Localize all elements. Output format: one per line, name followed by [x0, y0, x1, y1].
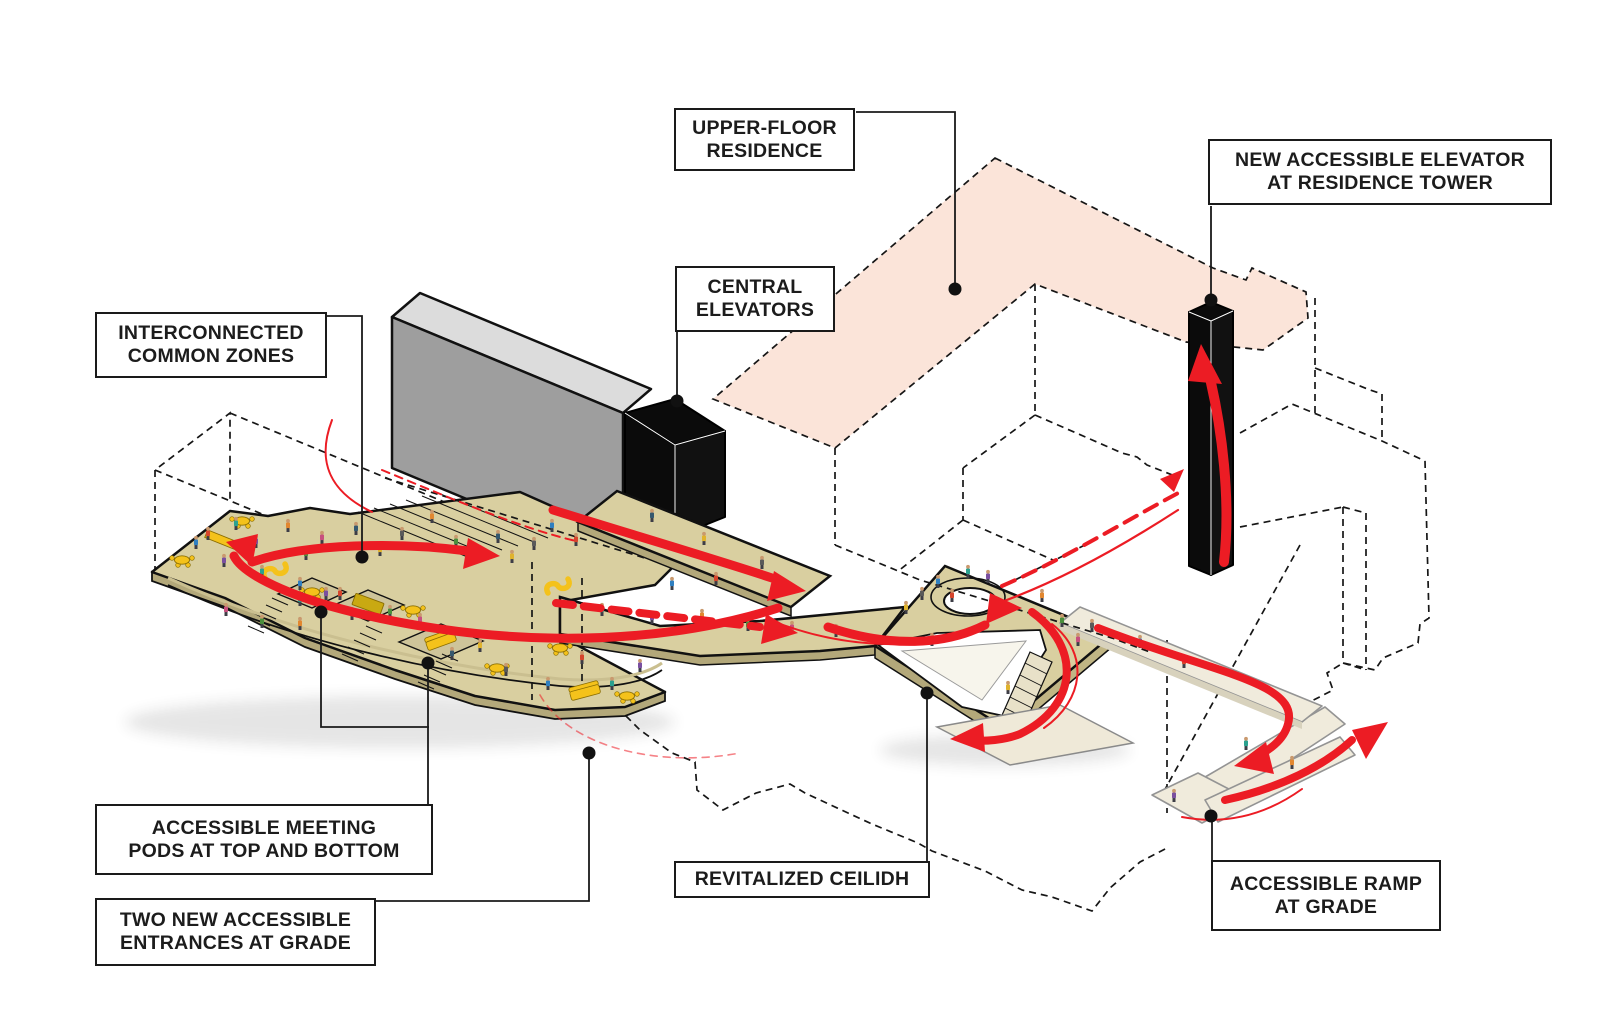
- label-line: RESIDENCE: [706, 140, 822, 163]
- person-figure: [400, 527, 404, 540]
- label-two-new-entrances: TWO NEW ACCESSIBLE ENTRANCES AT GRADE: [95, 898, 376, 966]
- person-figure: [1040, 589, 1044, 602]
- person-figure: [650, 509, 654, 522]
- label-line: AT GRADE: [1275, 896, 1377, 919]
- person-figure: [950, 589, 954, 602]
- person-figure: [702, 532, 706, 545]
- person-figure: [1076, 633, 1080, 646]
- person-figure: [966, 565, 970, 578]
- person-figure: [1244, 737, 1248, 750]
- label-line: ENTRANCES AT GRADE: [120, 932, 351, 955]
- accessible-ramp: [1060, 607, 1355, 823]
- label-line: COMMON ZONES: [128, 345, 295, 368]
- label-line: ELEVATORS: [696, 299, 814, 322]
- label-line: NEW ACCESSIBLE ELEVATOR: [1235, 149, 1525, 172]
- person-figure: [714, 572, 718, 585]
- elevator-link-dashed: [1002, 492, 1180, 586]
- label-accessible-meeting-pods: ACCESSIBLE MEETING PODS AT TOP AND BOTTO…: [95, 804, 433, 875]
- person-figure: [550, 519, 554, 532]
- person-figure: [430, 510, 434, 523]
- person-figure: [354, 522, 358, 535]
- label-line: TWO NEW ACCESSIBLE: [120, 909, 351, 932]
- person-figure: [504, 663, 508, 676]
- person-figure: [224, 603, 228, 616]
- person-figure: [638, 659, 642, 672]
- person-figure: [580, 651, 584, 664]
- person-figure: [670, 577, 674, 590]
- ramp-upper-side: [1060, 623, 1302, 729]
- label-new-accessible-elevator: NEW ACCESSIBLE ELEVATOR AT RESIDENCE TOW…: [1208, 139, 1552, 205]
- label-central-elevators: CENTRAL ELEVATORS: [675, 266, 835, 332]
- label-line: REVITALIZED CEILIDH: [695, 868, 910, 891]
- label-revitalized-ceilidh: REVITALIZED CEILIDH: [674, 861, 930, 898]
- person-figure: [194, 536, 198, 549]
- label-accessible-ramp: ACCESSIBLE RAMP AT GRADE: [1211, 860, 1441, 931]
- person-figure: [206, 527, 210, 540]
- person-figure: [574, 533, 578, 546]
- label-line: UPPER-FLOOR: [692, 117, 837, 140]
- person-figure: [936, 575, 940, 588]
- person-figure: [760, 556, 764, 569]
- person-figure: [298, 617, 302, 630]
- label-line: CENTRAL: [708, 276, 803, 299]
- upper-entry-flow-thin: [326, 420, 372, 512]
- person-figure: [222, 554, 226, 567]
- person-figure: [286, 519, 290, 532]
- diagram-canvas: UPPER-FLOOR RESIDENCE CENTRAL ELEVATORS …: [0, 0, 1600, 1035]
- person-figure: [904, 601, 908, 614]
- label-line: AT RESIDENCE TOWER: [1267, 172, 1493, 195]
- person-figure: [546, 677, 550, 690]
- person-figure: [1060, 614, 1064, 627]
- person-figure: [610, 677, 614, 690]
- person-figure: [986, 570, 990, 583]
- person-figure: [320, 531, 324, 544]
- person-figure: [532, 537, 536, 550]
- person-figure: [920, 587, 924, 600]
- label-upper-floor-residence: UPPER-FLOOR RESIDENCE: [674, 108, 855, 171]
- label-line: ACCESSIBLE RAMP: [1230, 873, 1422, 896]
- person-figure: [324, 587, 328, 600]
- person-figure: [1006, 681, 1010, 694]
- label-line: ACCESSIBLE MEETING: [152, 817, 376, 840]
- person-figure: [496, 530, 500, 543]
- person-figure: [450, 647, 454, 660]
- person-figure: [510, 550, 514, 563]
- label-line: INTERCONNECTED: [118, 322, 304, 345]
- label-interconnected-common-zones: INTERCONNECTED COMMON ZONES: [95, 312, 327, 378]
- label-line: PODS AT TOP AND BOTTOM: [128, 840, 399, 863]
- person-figure: [260, 615, 264, 628]
- person-figure: [478, 639, 482, 652]
- person-figure: [1172, 789, 1176, 802]
- ghost-center-prism: [897, 415, 1180, 572]
- person-figure: [338, 587, 342, 600]
- person-figure: [234, 517, 238, 530]
- elevator-link-thin: [1004, 510, 1178, 601]
- person-figure: [298, 577, 302, 590]
- person-figure: [1290, 756, 1294, 769]
- person-figure: [1090, 619, 1094, 632]
